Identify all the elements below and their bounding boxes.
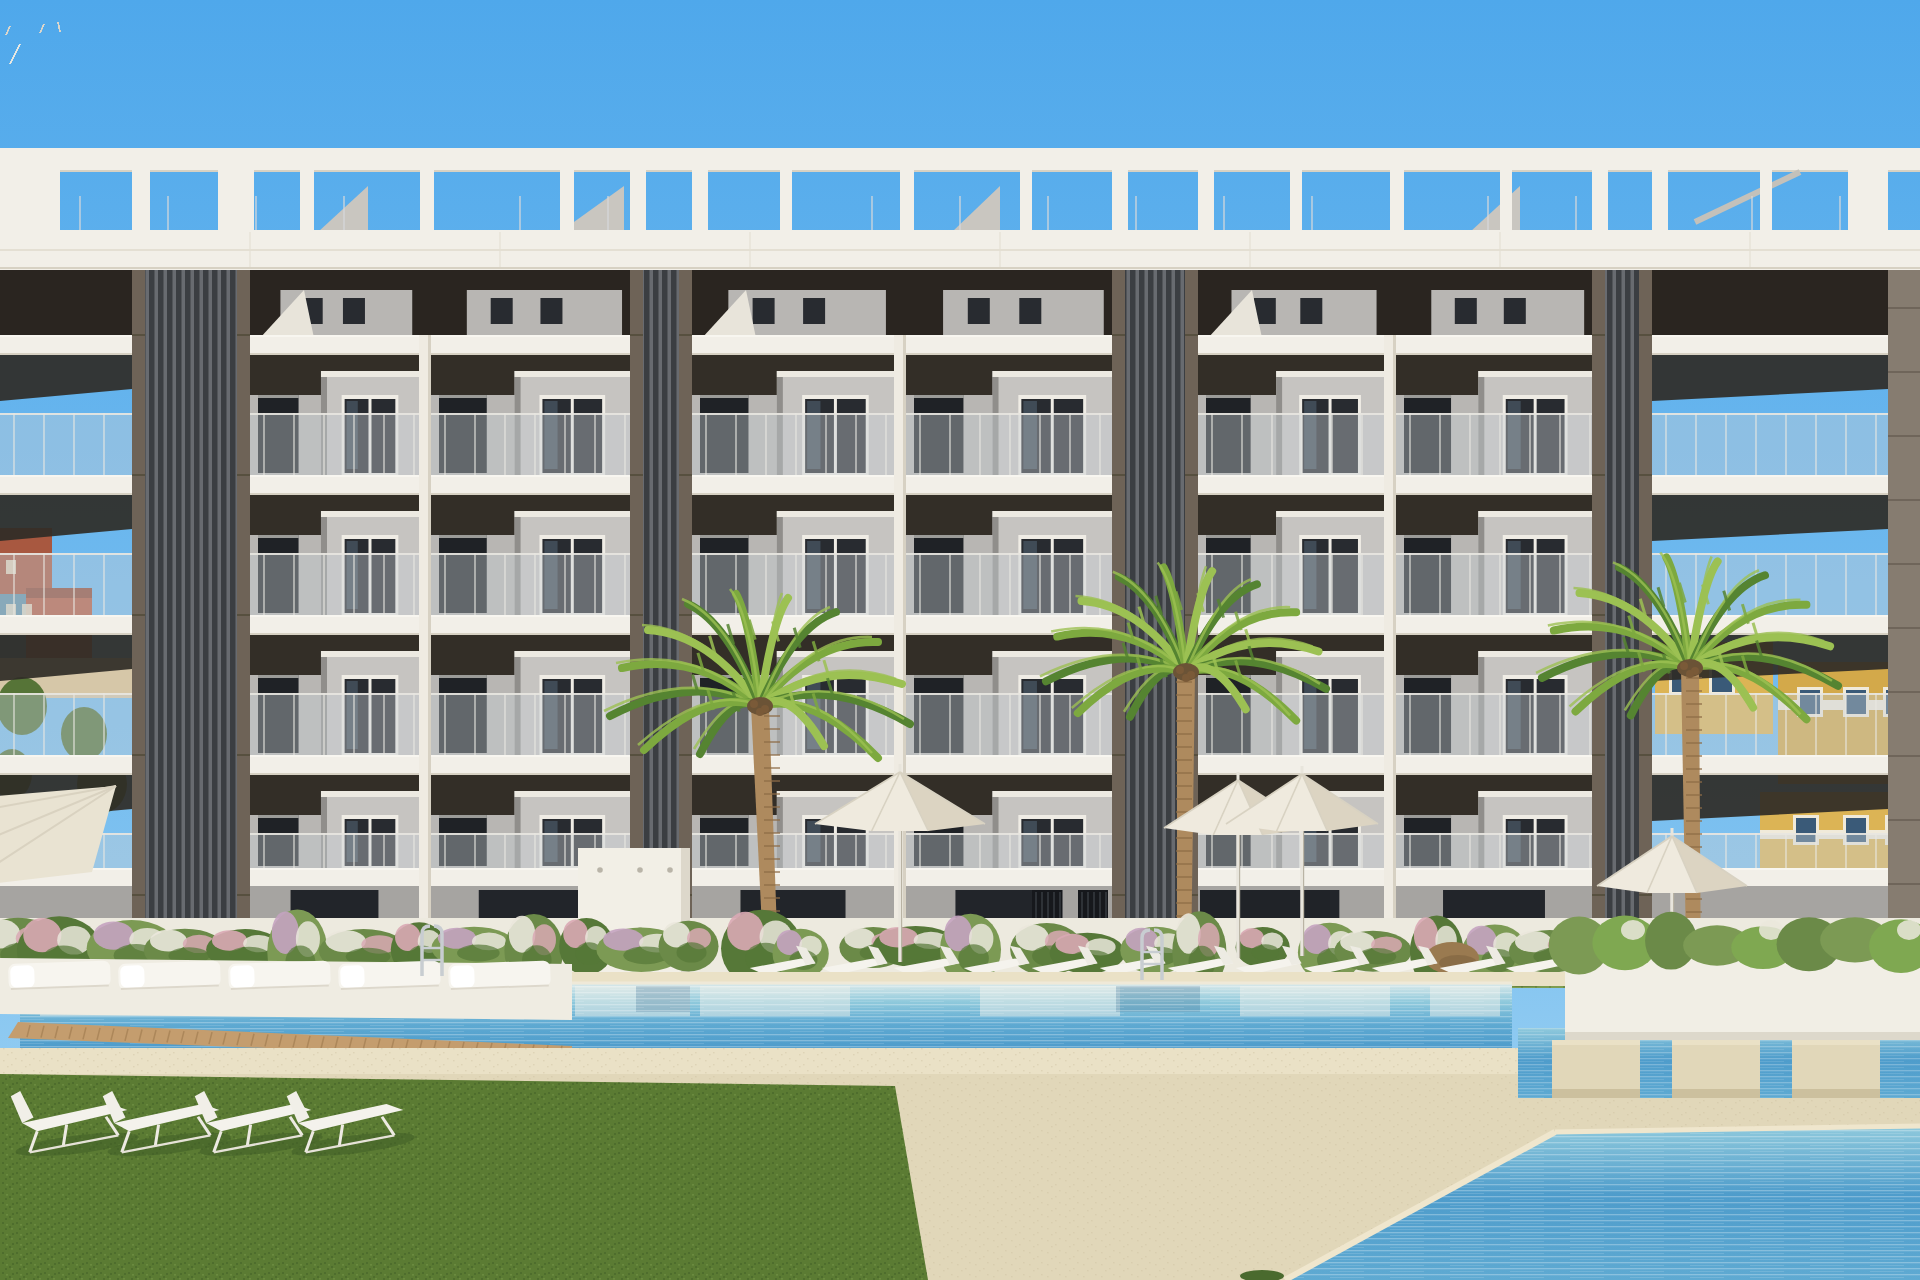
render-stage (0, 0, 1920, 1280)
raised-planter (1549, 912, 1920, 1040)
apartment-pool-render (0, 0, 1920, 1280)
daybed (228, 960, 331, 990)
daybed (338, 960, 441, 990)
daybed (448, 960, 551, 990)
daybed (8, 960, 111, 990)
daybed (118, 960, 221, 990)
apartment-building (0, 148, 1920, 1040)
core-tower (132, 268, 250, 980)
foreground-lawn (0, 1074, 928, 1280)
